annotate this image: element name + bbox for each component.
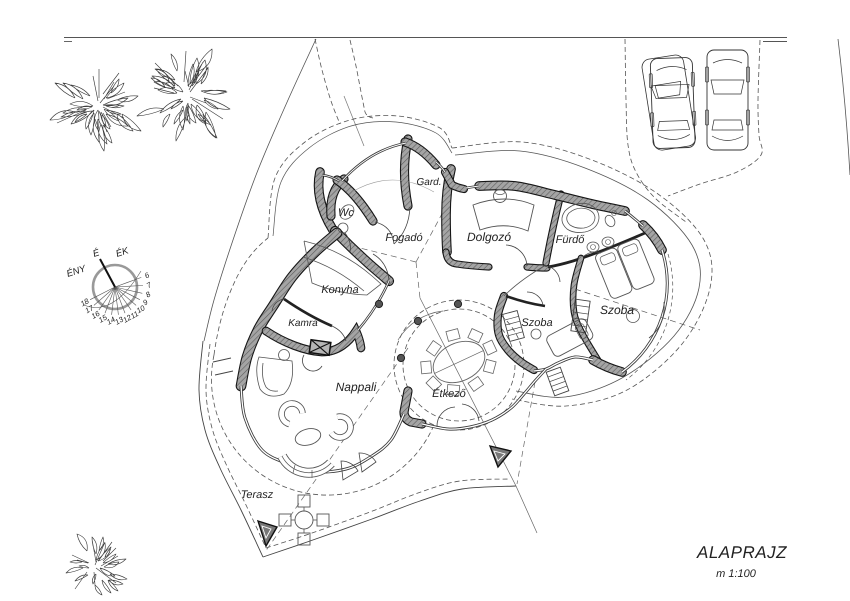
svg-text:Dolgozó: Dolgozó [467,230,511,244]
svg-text:Nappali: Nappali [336,380,377,394]
svg-text:Konyha: Konyha [321,284,358,296]
svg-text:Szoba: Szoba [600,303,634,317]
svg-text:ALAPRAJZ: ALAPRAJZ [696,543,787,562]
svg-text:Terasz: Terasz [241,489,274,501]
svg-text:Szoba: Szoba [521,317,552,329]
svg-text:m 1:100: m 1:100 [716,568,757,580]
svg-text:Fogadó: Fogadó [385,232,422,244]
svg-text:Gard.: Gard. [416,177,441,188]
svg-text:Wc: Wc [338,207,354,219]
svg-text:Fürdő: Fürdő [556,234,586,246]
svg-text:Étkező: Étkező [432,387,467,400]
svg-text:Kamra: Kamra [288,318,318,329]
